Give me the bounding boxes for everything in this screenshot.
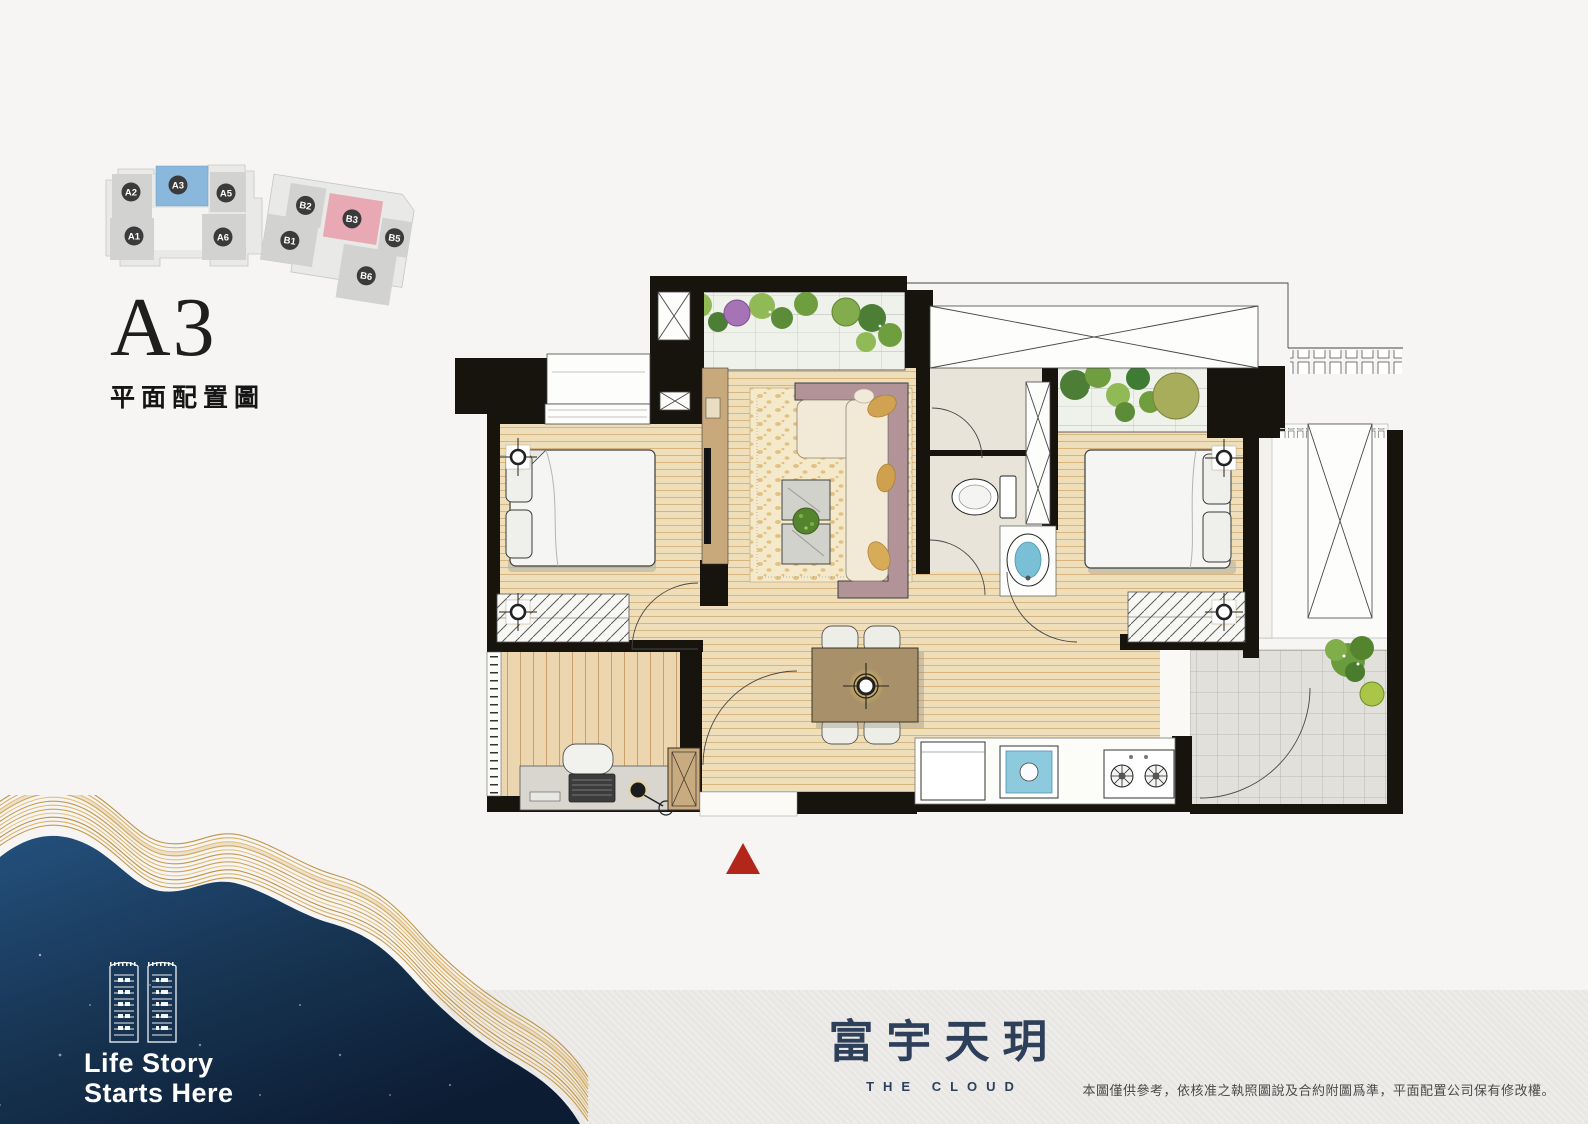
planter-green-shrub [832,298,860,326]
entry-threshold [700,792,797,816]
pillow [1203,512,1231,562]
tagline-line-1: Life Story [84,1048,234,1078]
utility-cabinet [1308,424,1372,618]
svg-text:B1: B1 [283,235,297,248]
svg-text:A6: A6 [217,233,229,244]
stove [1104,750,1174,798]
pillow [506,510,532,558]
unit-subtitle: 平面配置圖 [110,378,265,414]
brand-logo-en: THE CLOUD [817,1079,1072,1094]
planter-olive-shrub [1153,373,1199,419]
svg-text:B6: B6 [359,270,373,283]
twin-tower-building-icon [100,952,186,1048]
tagline-line-2: Starts Here [84,1078,234,1108]
tv-screen [704,448,711,544]
page: B2 B3 B5 B1 B6 A2 A3 A5 A1 A6 A3 平面配置圖 [0,0,1588,1124]
study-cabinet [668,748,700,810]
brand-logo: 富宇天玥 THE CLOUD [817,1005,1072,1094]
svg-text:A2: A2 [125,188,137,199]
bedroom-1-window [545,404,650,424]
planter-bedroom-2 [1053,358,1209,432]
planter-purple-shrub [724,300,750,326]
table-plant [793,508,819,534]
unit-label: A3 [110,288,265,368]
floor-plan [450,258,1410,883]
ac-platform [930,306,1258,368]
toilet [952,476,1016,518]
dining-floor [700,650,1190,740]
disclaimer-text: 本圖僅供參考，依核准之執照圖說及合約附圖爲準，平面配置公司保有修改權。 [1082,1080,1555,1099]
tv-cabinet [702,368,728,564]
tagline: Life Story Starts Here [84,1048,234,1108]
svg-text:B2: B2 [298,200,312,213]
window-ledge [547,354,650,404]
fridge [921,742,985,800]
svg-text:B3: B3 [345,213,359,226]
keyplan-courtyard [152,208,208,250]
louver-strip [1290,350,1402,374]
brand-logo-cn: 富宇天玥 [817,1005,1072,1070]
desk-chair [563,744,613,774]
svg-text:A3: A3 [172,181,184,192]
svg-text:A5: A5 [220,189,233,200]
bathroom-cabinet [1026,382,1050,524]
svg-text:A1: A1 [128,232,141,243]
keyplan-building-b: B2 B3 B5 B1 B6 [257,174,417,307]
entrance-marker-icon [726,843,760,874]
kitchen [915,738,1175,804]
unit-title-block: A3 平面配置圖 [110,288,265,414]
svg-text:B5: B5 [388,232,402,245]
study-window [487,652,501,796]
